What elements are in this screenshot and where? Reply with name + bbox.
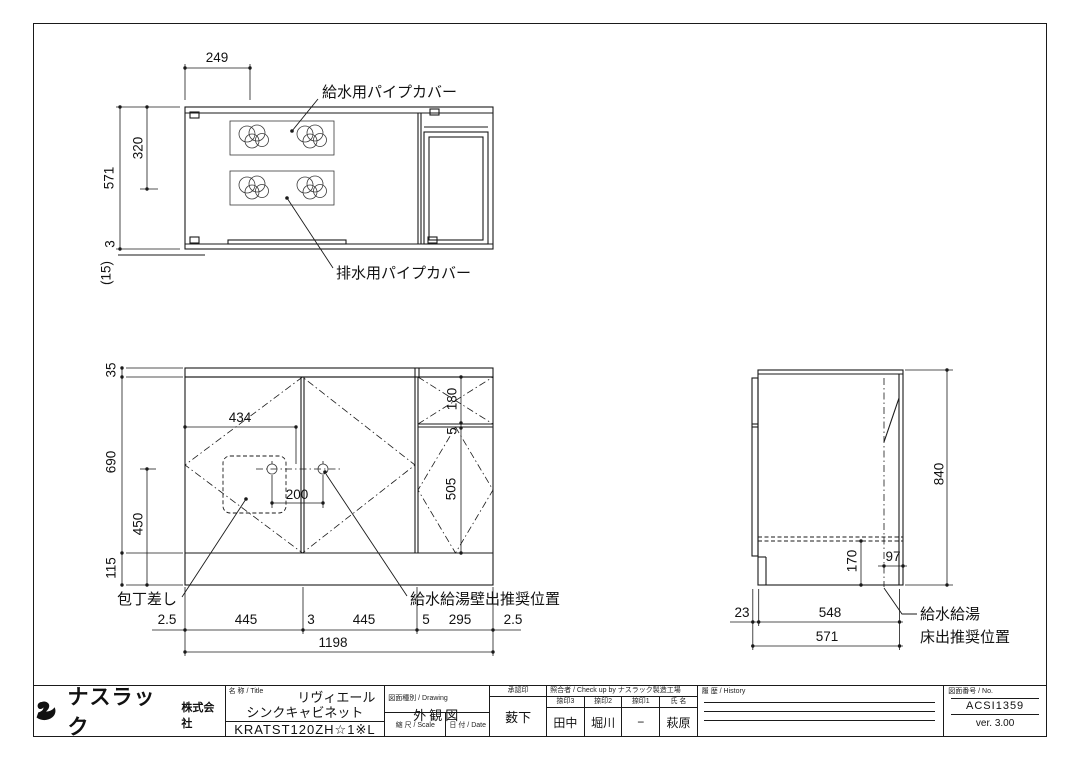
label-floor-outlet-line1: 給水給湯 [920,606,980,623]
checkup-col1-header: 捺印3 [547,697,584,708]
history-line [704,702,935,703]
front-knife-pocket [223,456,286,513]
approval-header: 承認印 [490,686,546,697]
dim-side-97: 97 [885,549,900,564]
side-cabinet-outline [752,370,903,585]
checkup-col-3: 捺印1 − [622,697,660,736]
approval-stamp-cell: 承認印 薮下 [490,686,547,736]
side-annotations: 給水給湯 床出推奨位置 [884,588,1010,646]
title-cell: 名 称 / Title リヴィエール シンクキャビネット KRATST120ZH… [226,686,386,736]
approval-name: 薮下 [490,697,546,736]
swan-logo-icon [34,699,61,724]
drawing-type-cell: 図面種別 / Drawing 外観図 縮 尺 / Scale S=1/10 日 … [385,686,490,736]
drawing-number-cell: 図面番号 / No. ACSI1359 ver. 3.00 [944,686,1046,736]
date-cell: 日 付 / Date 2015.09.30 [446,713,489,737]
model-number: KRATST120ZH☆1※L [226,721,385,737]
dim-front-b2: 3 [307,612,315,627]
drawing-number-header: 図面番号 / No. [948,687,1046,696]
checkup-col4-name: 萩原 [660,708,697,736]
plan-cabinet-outline [118,107,493,255]
date-value: 2015.09.30 [448,734,487,737]
dim-side-571: 571 [816,629,839,644]
drawing-number-value: ACSI1359 [951,698,1039,715]
history-cell: 履 歴 / History [698,686,944,736]
dim-plan-3: 3 [103,240,118,248]
dim-front-b3: 445 [353,612,376,627]
dim-front-b4: 5 [422,612,430,627]
front-annotations: 包丁差し 給水給湯壁出推奨位置 [117,470,560,608]
checkup-col-1: 捺印3 田中 [547,697,585,736]
dim-front-690: 690 [104,451,119,474]
plan-pipe-covers [230,121,334,205]
product-series: リヴィエール [297,687,375,706]
scale-header: 縮 尺 / Scale [396,722,435,729]
checkup-header: 照合者 / Check up by ナスラック製造工場 [547,686,697,697]
side-view: 840 170 97 23 548 571 給水給湯 床出推奨位置 [730,368,1010,650]
checkup-col-2: 捺印2 堀川 [585,697,623,736]
dim-front-35: 35 [104,362,119,377]
checkup-col1-name: 田中 [547,708,584,736]
dim-front-200: 200 [286,487,309,502]
checkup-col2-name: 堀川 [585,708,622,736]
dim-front-b0: 2.5 [158,612,177,627]
dim-side-23: 23 [734,605,749,620]
company-logo-cell: ナスラック 株式会社 [34,686,226,736]
dim-side-840: 840 [932,463,947,486]
company-suffix: 株式会社 [181,699,224,731]
scale-value: S=1/10 [387,734,443,737]
drawing-version: ver. 3.00 [951,718,1039,729]
dim-front-180: 180 [445,388,460,411]
checkup-cell: 照合者 / Check up by ナスラック製造工場 捺印3 田中 捺印2 堀… [547,686,698,736]
checkup-col2-header: 捺印2 [585,697,622,708]
label-floor-outlet-line2: 床出推奨位置 [920,629,1010,646]
product-type: シンクキャビネット [226,706,385,719]
checkup-col3-header: 捺印1 [622,697,659,708]
dim-side-548: 548 [819,605,842,620]
date-header: 日 付 / Date [449,722,486,729]
dim-plan-320: 320 [131,137,146,160]
front-view: 35 690 450 115 434 200 180 5 505 2.5 445… [104,362,561,656]
dim-front-505: 505 [444,478,459,501]
checkup-col-4: 氏 名 萩原 [660,697,697,736]
label-drain-pipe-cover: 排水用パイプカバー [336,265,471,282]
label-supply-pipe-cover: 給水用パイプカバー [322,84,457,101]
company-name: ナスラック [67,685,175,737]
dim-plan-571: 571 [102,167,117,190]
dim-front-b1: 445 [235,612,258,627]
title-row1: 名 称 / Title リヴィエール [226,686,385,706]
history-line [704,711,935,712]
dim-front-5: 5 [445,427,460,435]
dim-front-b5: 295 [449,612,472,627]
label-wall-outlet-position: 給水給湯壁出推奨位置 [410,591,560,608]
dim-front-434: 434 [229,410,252,425]
drawing-type-header: 図面種別 / Drawing [388,695,448,702]
label-knife-holder: 包丁差し [117,591,177,608]
dim-front-b6: 2.5 [504,612,523,627]
dim-front-450: 450 [131,513,146,536]
scale-date-row: 縮 尺 / Scale S=1/10 日 付 / Date 2015.09.30 [385,713,489,737]
drawing-sheet: { "page": { "background": "#ffffff", "li… [0,0,1080,764]
checkup-columns: 捺印3 田中 捺印2 堀川 捺印1 − 氏 名 萩原 [547,697,697,736]
dim-side-170: 170 [845,550,860,573]
dim-plan-15: (15) [99,261,114,285]
checkup-col3-name: − [622,708,659,736]
plan-view: 249 571 320 3 (15) 給水用パイプカバー 排水用パイプカバー [99,50,494,285]
history-header: 履 歴 / History [702,687,943,696]
drawing-type: 図面種別 / Drawing 外観図 [385,686,489,713]
scale-cell: 縮 尺 / Scale S=1/10 [385,713,446,737]
dim-plan-249: 249 [206,50,229,65]
checkup-col4-header: 氏 名 [660,697,697,708]
title-block: ナスラック 株式会社 名 称 / Title リヴィエール シンクキャビネット … [33,685,1047,737]
dim-front-115: 115 [104,557,119,579]
dim-front-1198: 1198 [318,635,347,650]
drawing-canvas: 249 571 320 3 (15) 給水用パイプカバー 排水用パイプカバー [0,0,1080,764]
history-line [704,720,935,721]
front-faucet-positions [256,461,340,474]
title-header: 名 称 / Title [229,687,264,696]
